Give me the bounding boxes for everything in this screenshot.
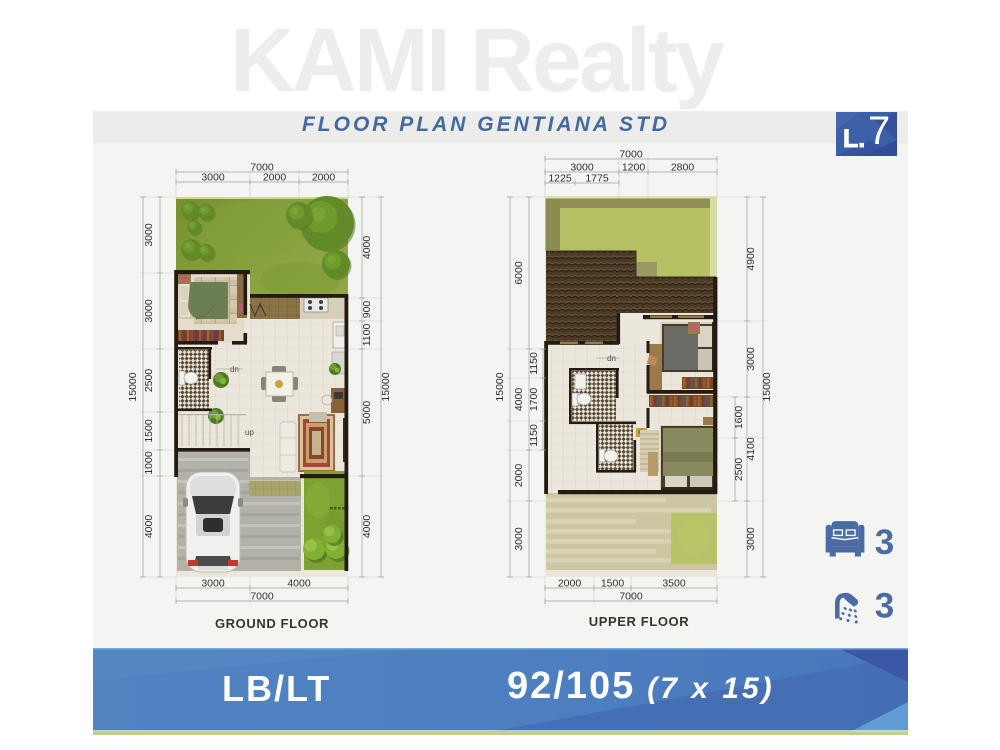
- svg-text:1000: 1000: [143, 451, 155, 475]
- svg-text:dn: dn: [607, 354, 616, 363]
- svg-text:4000: 4000: [361, 236, 373, 260]
- svg-text:1200: 1200: [622, 162, 646, 174]
- svg-text:2000: 2000: [558, 578, 582, 590]
- svg-text:2000: 2000: [312, 172, 336, 184]
- svg-text:7000: 7000: [250, 591, 274, 603]
- svg-text:2000: 2000: [513, 464, 525, 488]
- svg-text:3: 3: [875, 523, 894, 562]
- svg-text:4000: 4000: [143, 515, 155, 539]
- svg-text:2800: 2800: [671, 162, 695, 174]
- svg-text:up: up: [245, 428, 254, 437]
- svg-text:3000: 3000: [201, 578, 225, 590]
- svg-text:4000: 4000: [287, 578, 311, 590]
- svg-text:3: 3: [875, 587, 894, 626]
- svg-text:900: 900: [361, 301, 373, 319]
- svg-text:4100: 4100: [745, 437, 757, 461]
- svg-text:3000: 3000: [745, 527, 757, 551]
- svg-text:1500: 1500: [143, 419, 155, 443]
- svg-text:15000: 15000: [761, 372, 773, 401]
- svg-text:3000: 3000: [513, 527, 525, 551]
- svg-text:1500: 1500: [601, 578, 625, 590]
- svg-text:3000: 3000: [745, 347, 757, 371]
- svg-text:15000: 15000: [494, 372, 506, 401]
- svg-text:3000: 3000: [201, 172, 225, 184]
- svg-text:1225: 1225: [548, 173, 572, 185]
- svg-text:3000: 3000: [143, 299, 155, 323]
- svg-text:7000: 7000: [619, 149, 643, 161]
- svg-text:15000: 15000: [127, 372, 139, 401]
- svg-text:4000: 4000: [361, 515, 373, 539]
- svg-text:3500: 3500: [662, 578, 686, 590]
- svg-text:4900: 4900: [745, 247, 757, 271]
- svg-text:6000: 6000: [513, 261, 525, 285]
- svg-text:1775: 1775: [585, 173, 609, 185]
- svg-text:15000: 15000: [380, 372, 392, 401]
- svg-text:4000: 4000: [513, 388, 525, 412]
- svg-text:5000: 5000: [361, 401, 373, 425]
- svg-text:1100: 1100: [361, 324, 373, 347]
- svg-text:dn: dn: [230, 365, 239, 374]
- svg-text:1150: 1150: [528, 352, 540, 375]
- svg-text:1150: 1150: [528, 424, 540, 447]
- svg-text:2500: 2500: [143, 369, 155, 393]
- svg-text:7000: 7000: [619, 591, 643, 603]
- svg-text:1700: 1700: [528, 388, 540, 412]
- svg-text:2500: 2500: [733, 458, 745, 482]
- svg-text:3000: 3000: [143, 223, 155, 247]
- svg-text:2000: 2000: [263, 172, 287, 184]
- svg-text:1600: 1600: [733, 406, 745, 430]
